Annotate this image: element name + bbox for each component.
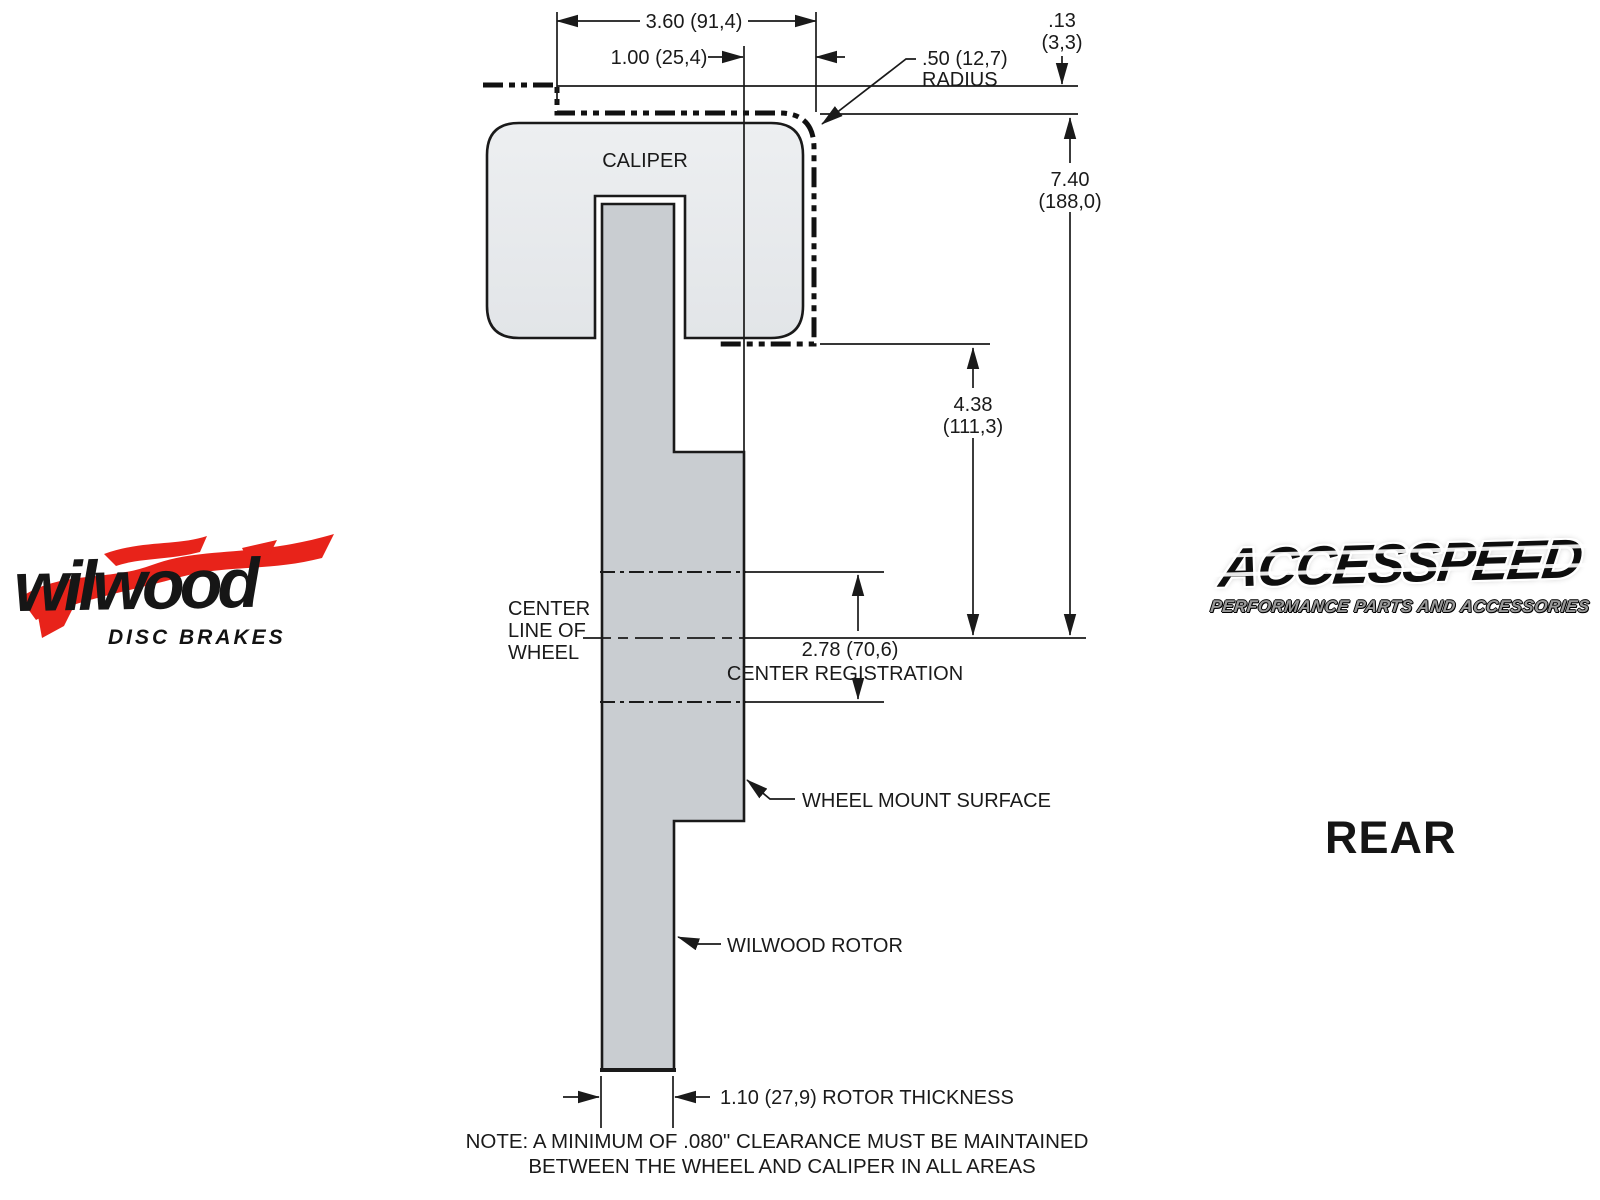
dim-clearance-text-line1: .13 (1048, 10, 1076, 32)
wilwood-logo-wordmark: wilwood (13, 540, 256, 630)
wilwood-logo: wilwood DISC BRAKES (12, 520, 347, 660)
dim-clearance-text-line2: (3,3) (1041, 32, 1082, 54)
accesspeed-logo: ACCESSPEED PERFORMANCE PARTS AND ACCESSO… (1190, 531, 1600, 641)
wilwood-logo-tagline: DISC BRAKES (108, 626, 286, 650)
dim-overall-width-text: 3.60 (91,4) (646, 11, 743, 33)
dim-center-reg-text-line1: 2.78 (70,6) (802, 639, 899, 661)
note-line2: BETWEEN THE WHEEL AND CALIPER IN ALL ARE… (528, 1155, 1035, 1178)
drawing-canvas: CALIPER 3.60 (91,4) 1.00 (25,4) .50 (12,… (0, 0, 1600, 1200)
dim-mount-height-text-line1: 4.38 (954, 394, 993, 416)
accesspeed-logo-tagline: PERFORMANCE PARTS AND ACCESSORIES (1189, 597, 1600, 617)
centerline-label-line1: CENTER (508, 598, 590, 620)
centerline-label-line2: LINE OF (508, 620, 586, 642)
view-label-rear: REAR (1325, 812, 1457, 864)
leader-wheel-mount-surface (747, 780, 795, 799)
accesspeed-logo-wordmark: ACCESSPEED (1216, 526, 1585, 599)
wilwood-rotor-label: WILWOOD ROTOR (727, 935, 903, 957)
leader-wilwood-rotor (678, 937, 721, 944)
dim-radius-text-line1: .50 (12,7) (922, 48, 1008, 70)
wheel-mount-surface-label: WHEEL MOUNT SURFACE (802, 790, 1051, 812)
caliper-label: CALIPER (602, 150, 688, 172)
dim-offset-text: 1.00 (25,4) (611, 47, 708, 69)
dim-mount-height-text-line2: (111,3) (943, 416, 1003, 438)
dim-center-reg-text-line2: CENTER REGISTRATION (727, 663, 963, 685)
note-line1: NOTE: A MINIMUM OF .080" CLEARANCE MUST … (466, 1130, 1089, 1153)
dim-radius-text-line2: RADIUS (922, 69, 998, 91)
centerline-label-line3: WHEEL (508, 642, 579, 664)
dim-rotor-thickness-text: 1.10 (27,9) ROTOR THICKNESS (720, 1087, 1014, 1109)
dim-height-text-line2: (188,0) (1038, 191, 1101, 213)
dim-height-text-line1: 7.40 (1051, 169, 1090, 191)
